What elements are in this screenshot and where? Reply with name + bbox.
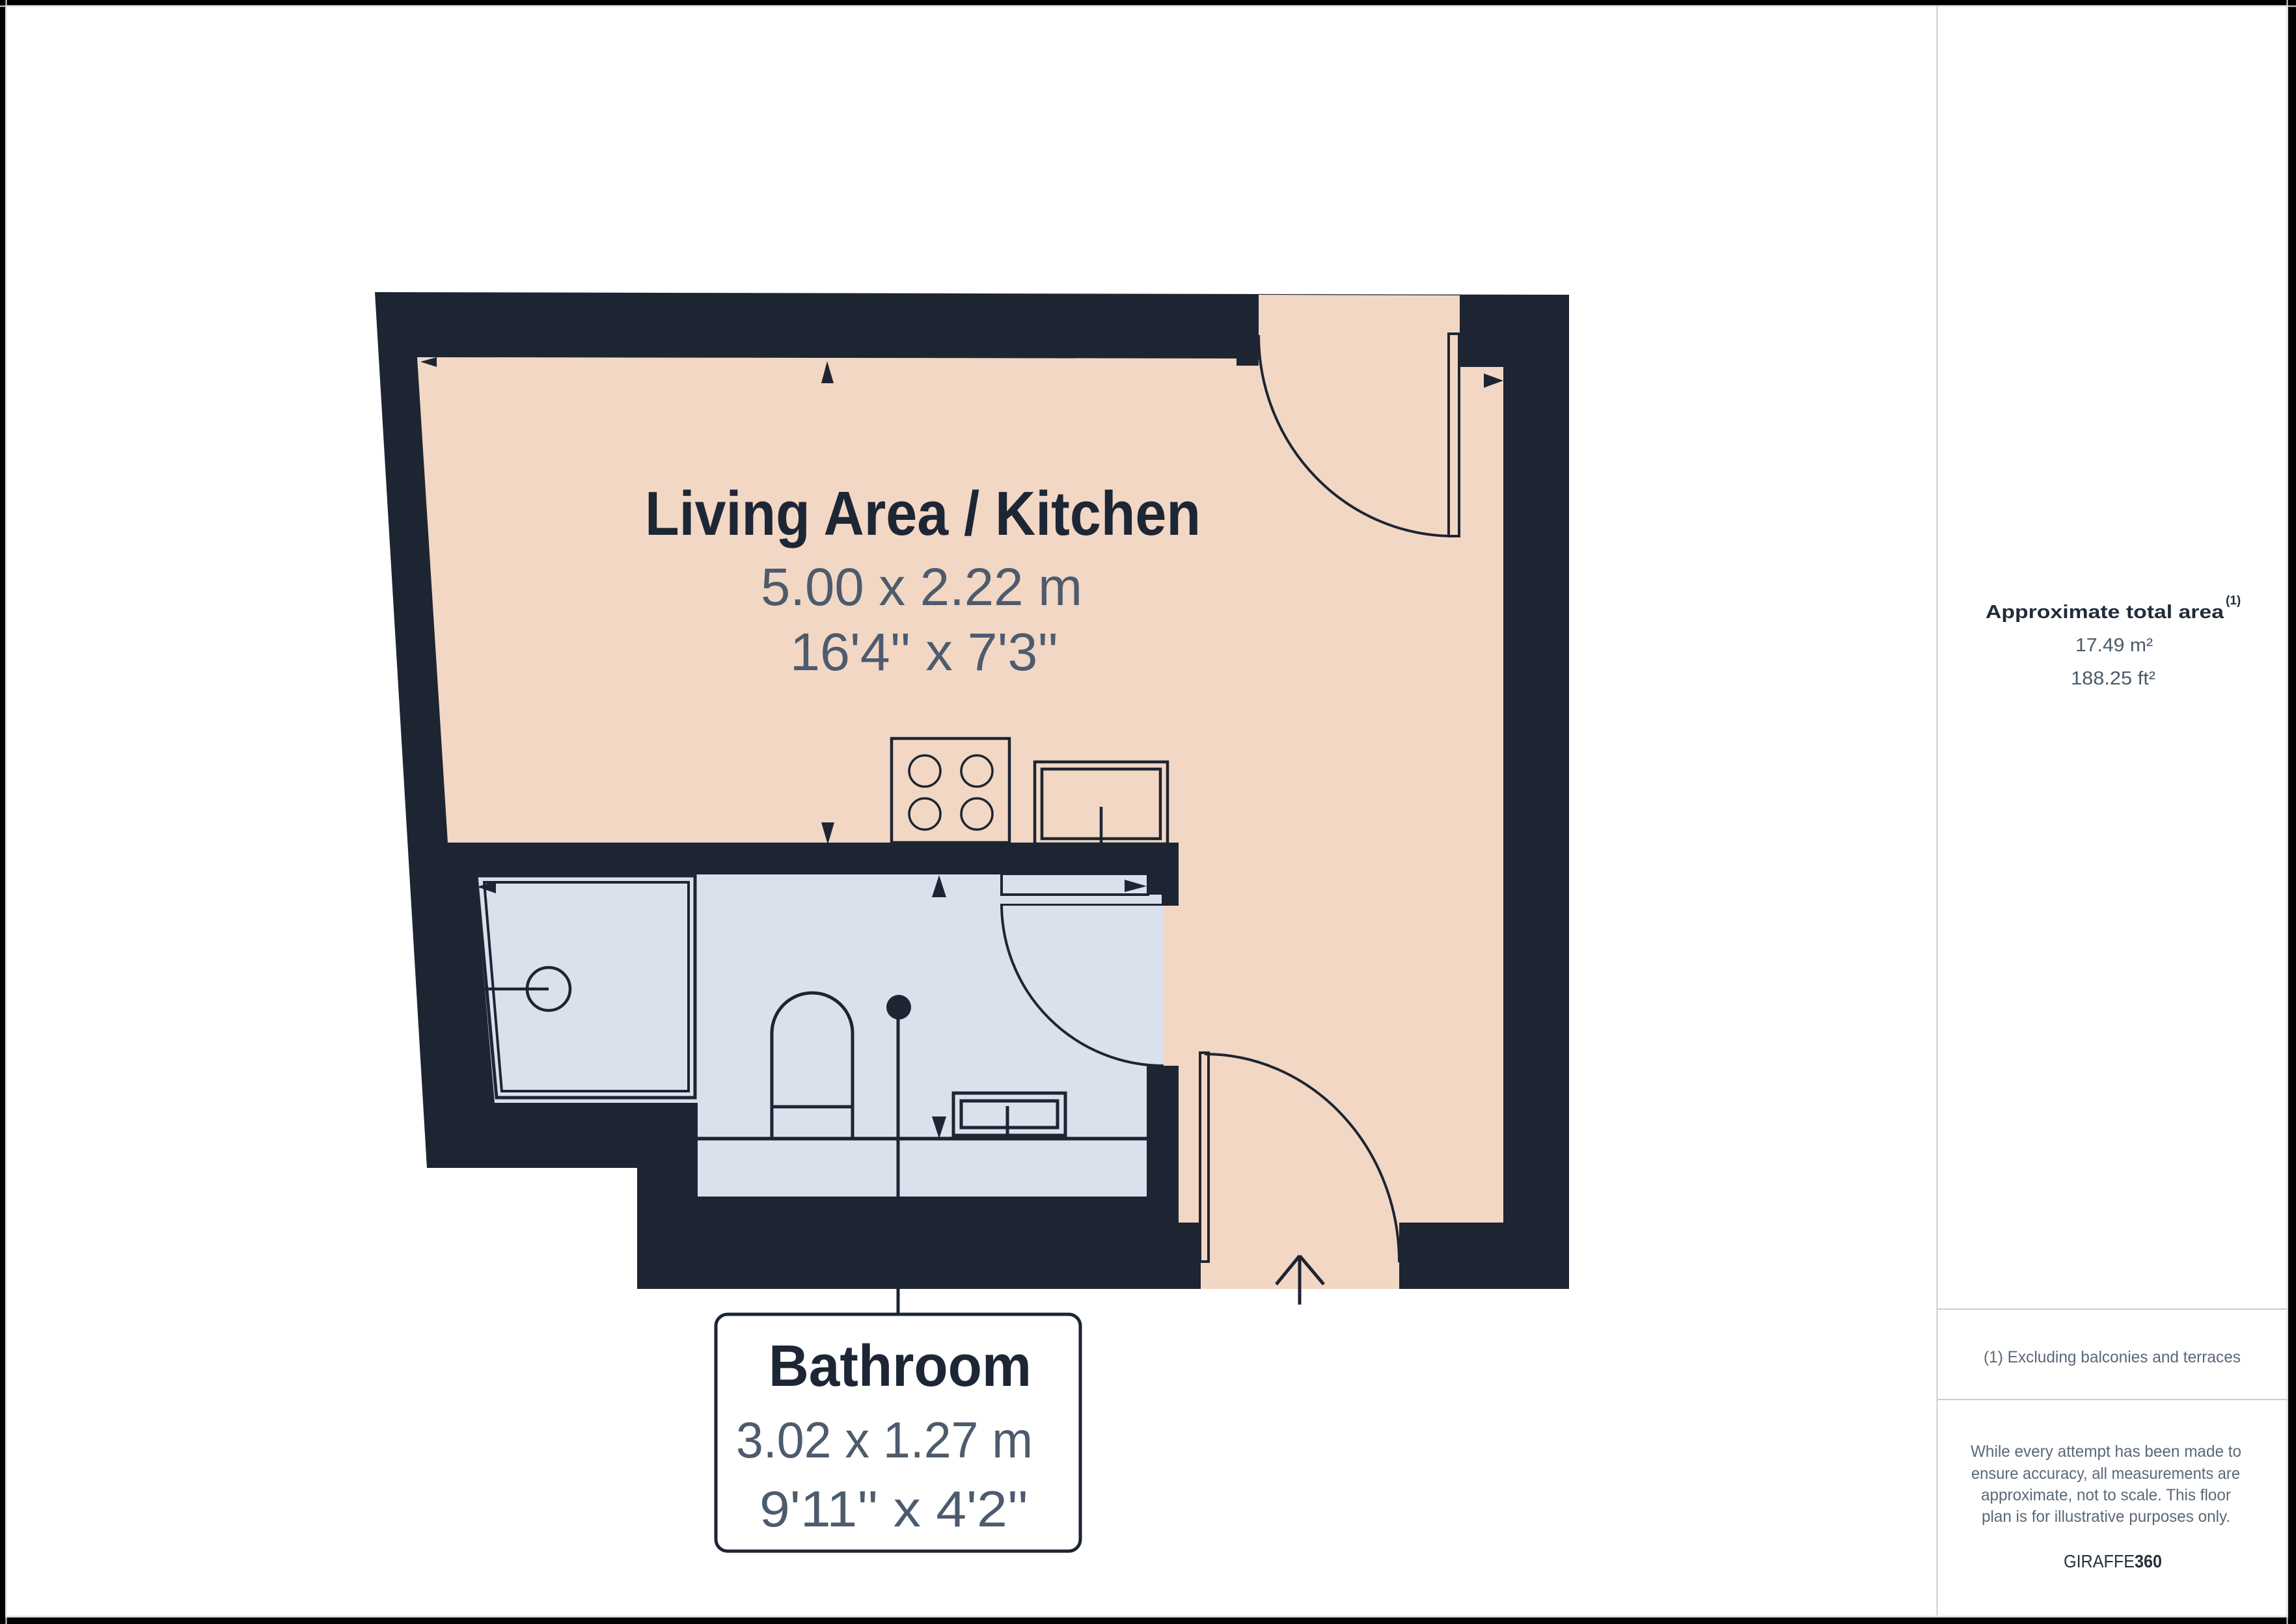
svg-text:188.25 ft²: 188.25 ft² [2071, 668, 2155, 689]
svg-text:16'4'' x 7'3'': 16'4'' x 7'3'' [790, 623, 1058, 682]
svg-text:Bathroom: Bathroom [769, 1334, 1032, 1399]
svg-text:approximate, not to scale. Thi: approximate, not to scale. This floor [1981, 1486, 2231, 1504]
svg-text:5.00 x 2.22 m: 5.00 x 2.22 m [761, 558, 1082, 617]
svg-text:ensure accuracy, all measureme: ensure accuracy, all measurements are [1971, 1465, 2240, 1483]
svg-text:Living Area / Kitchen: Living Area / Kitchen [645, 479, 1201, 548]
svg-text:(1) Excluding balconies and te: (1) Excluding balconies and terraces [1984, 1348, 2241, 1366]
svg-text:plan is for illustrative purpo: plan is for illustrative purposes only. [1982, 1508, 2230, 1526]
svg-text:(1): (1) [2226, 594, 2241, 608]
svg-text:GIRAFFE360: GIRAFFE360 [2064, 1551, 2162, 1571]
svg-text:17.49 m²: 17.49 m² [2075, 635, 2153, 656]
svg-text:Approximate total area: Approximate total area [1986, 602, 2224, 623]
svg-text:While every attempt has been m: While every attempt has been made to [1971, 1442, 2241, 1461]
svg-text:3.02 x 1.27 m: 3.02 x 1.27 m [736, 1411, 1033, 1468]
svg-text:9'11'' x 4'2'': 9'11'' x 4'2'' [759, 1480, 1028, 1537]
